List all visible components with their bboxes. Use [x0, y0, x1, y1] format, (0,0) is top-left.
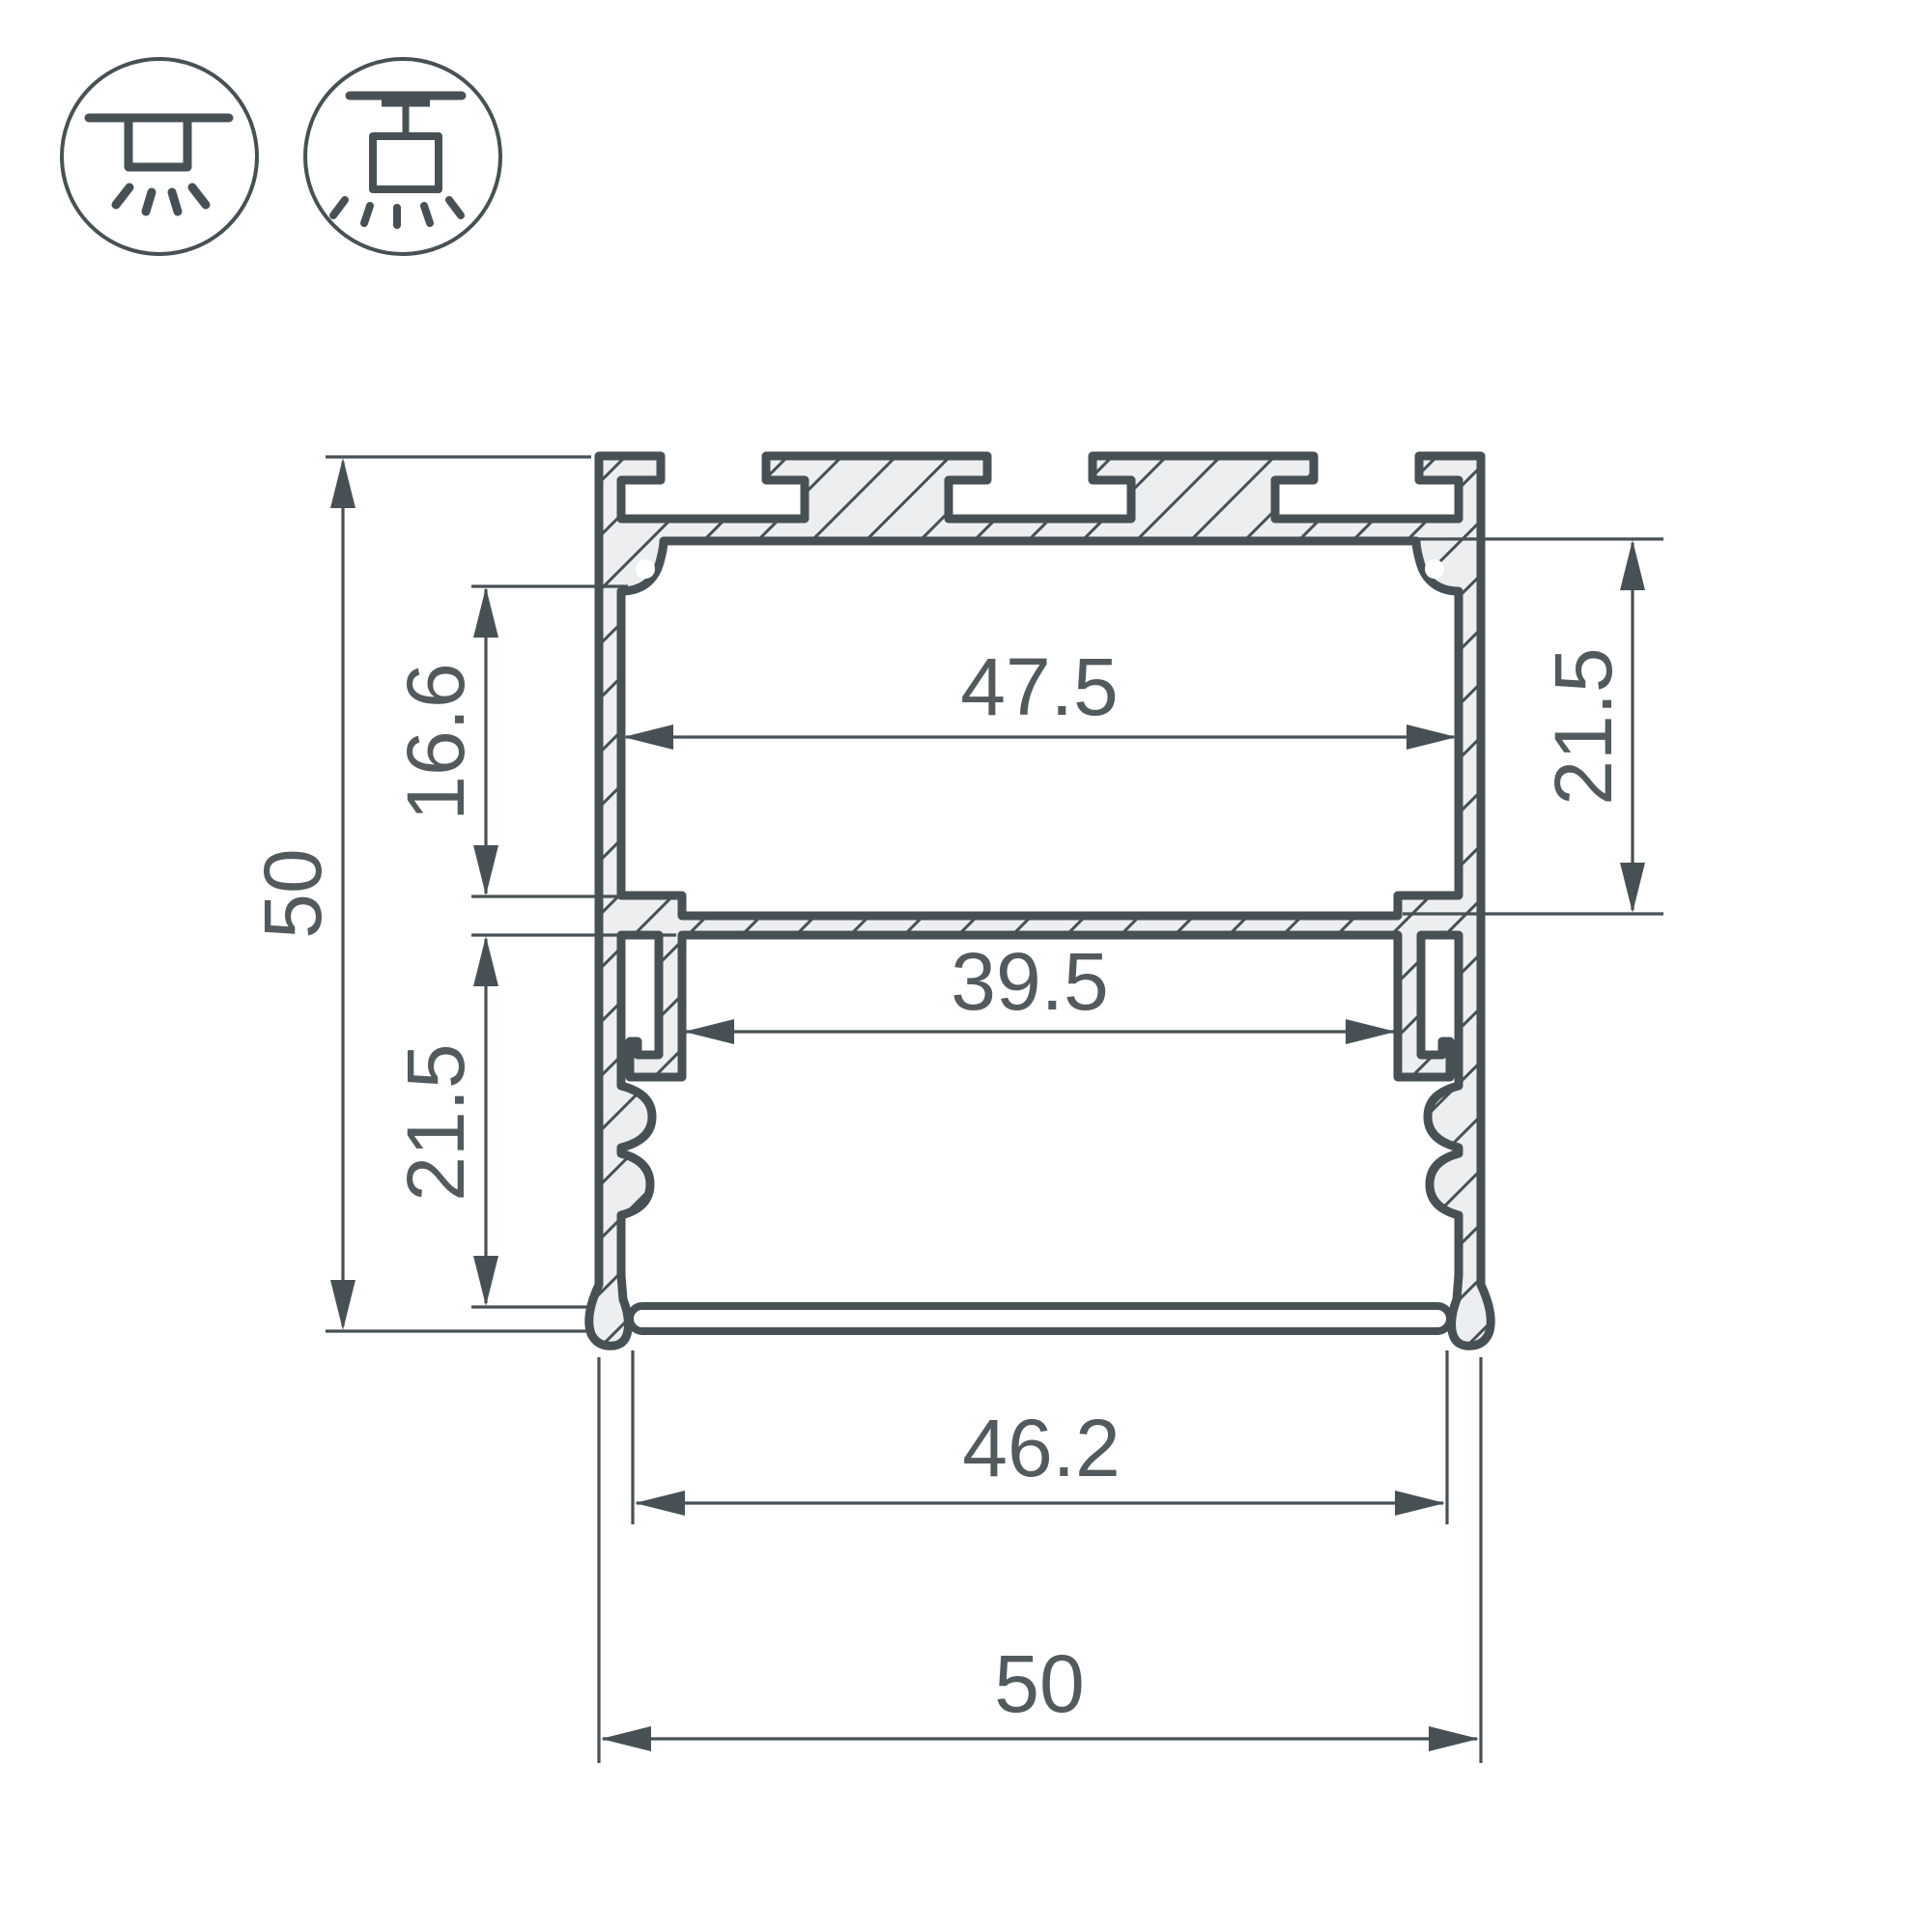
screw-boss-slot-right: [1425, 559, 1444, 579]
dim-upper-chamber-height: 21.5: [1403, 539, 1663, 914]
surface-mount-icon: [62, 59, 257, 254]
dim-label-bottom-inner-width: 46.2: [962, 1403, 1121, 1493]
screw-boss-slot-left: [636, 559, 655, 579]
dim-label-shelf-opening-width: 39.5: [951, 936, 1109, 1027]
dim-label-height-overall: 50: [247, 848, 338, 938]
dim-label-upper-inner-width: 47.5: [960, 641, 1119, 732]
drawing-page: 50 16.6 21.5 47.5 21.5: [0, 0, 1932, 1932]
dim-upper-inner-width: 47.5: [623, 641, 1457, 750]
diffuser-lens: [630, 1306, 1450, 1331]
light-rays: [333, 200, 461, 225]
profile-drawing: 50 16.6 21.5 47.5 21.5: [0, 0, 1932, 1932]
dim-label-upper-chamber-height: 21.5: [1538, 647, 1629, 806]
profile-body: [589, 456, 1491, 1346]
dim-label-lower-chamber-height: 21.5: [390, 1043, 481, 1202]
dim-label-top-to-shelf-offset: 16.6: [390, 663, 481, 821]
pendant-mount-icon: [305, 59, 500, 254]
dim-bottom-inner-width: 46.2: [633, 1350, 1447, 1524]
dim-shelf-opening-width: 39.5: [682, 936, 1398, 1063]
dim-label-width-overall: 50: [994, 1638, 1084, 1729]
light-rays: [116, 187, 206, 212]
